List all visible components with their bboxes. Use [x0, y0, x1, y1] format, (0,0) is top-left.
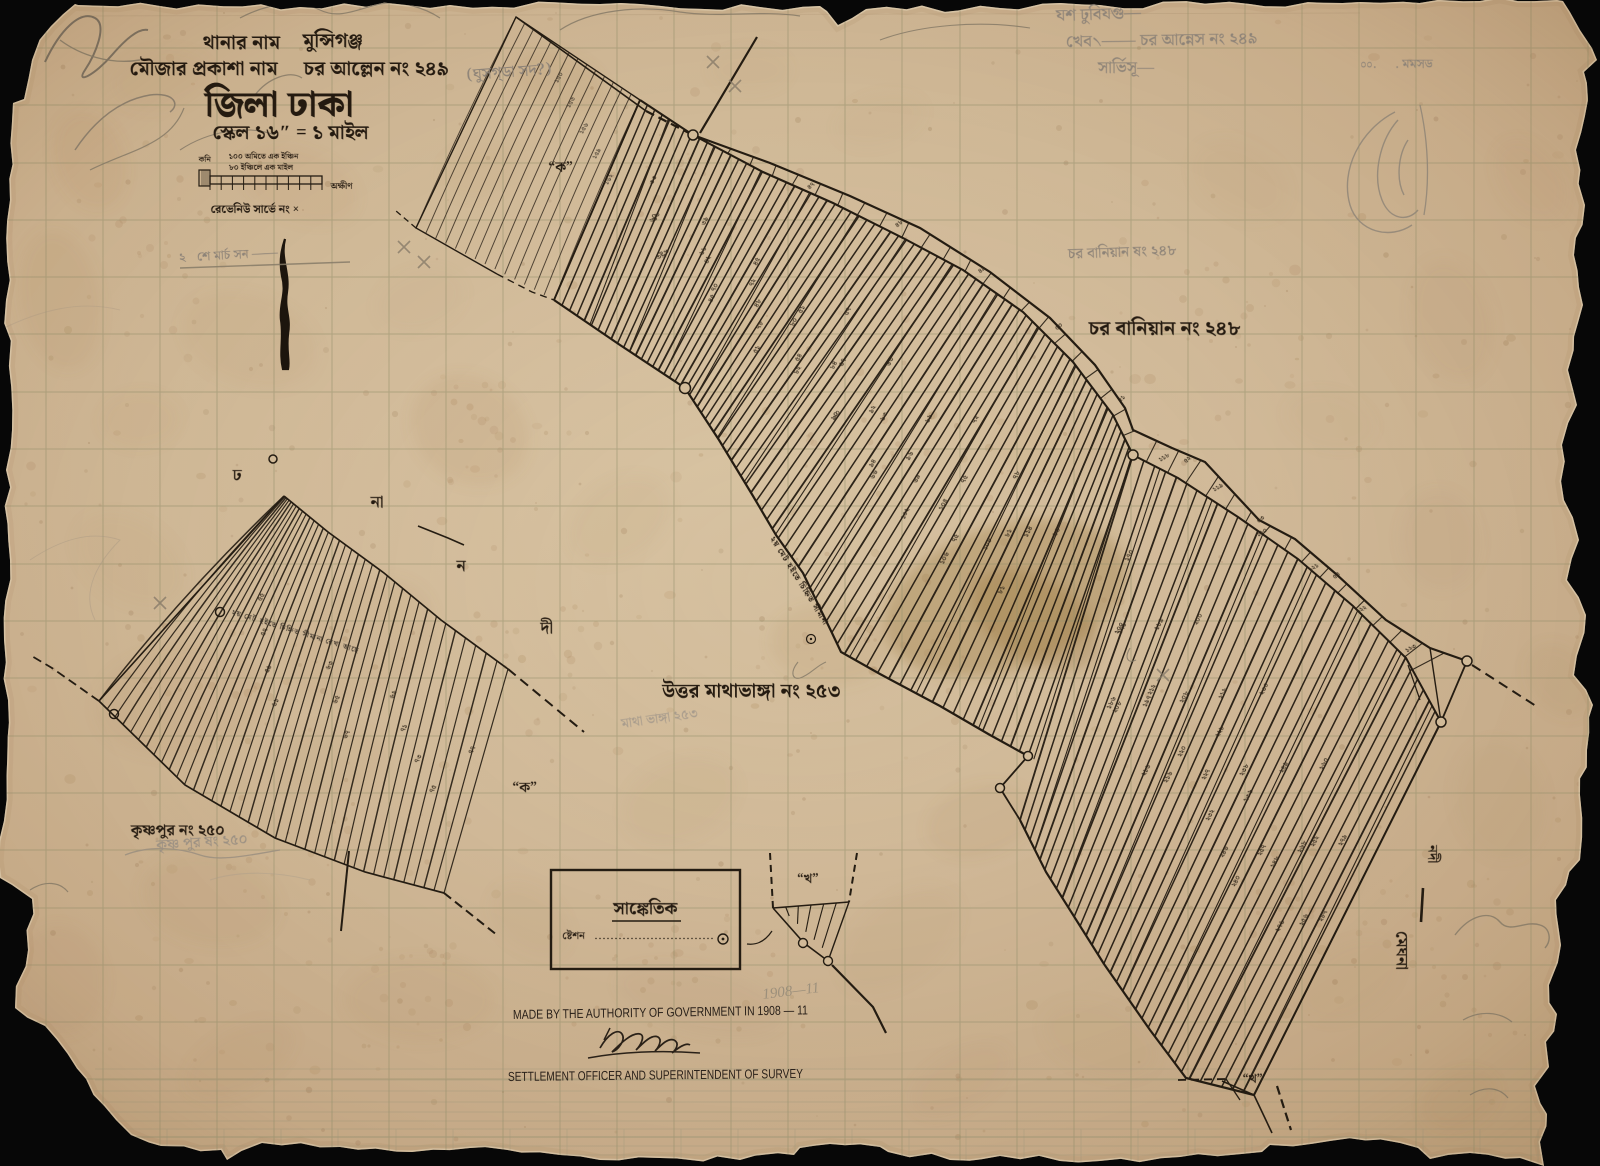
svg-text:SETTLEMENT OFFICER AND SUPERIN: SETTLEMENT OFFICER AND SUPERINTENDENT OF… [508, 1066, 803, 1084]
